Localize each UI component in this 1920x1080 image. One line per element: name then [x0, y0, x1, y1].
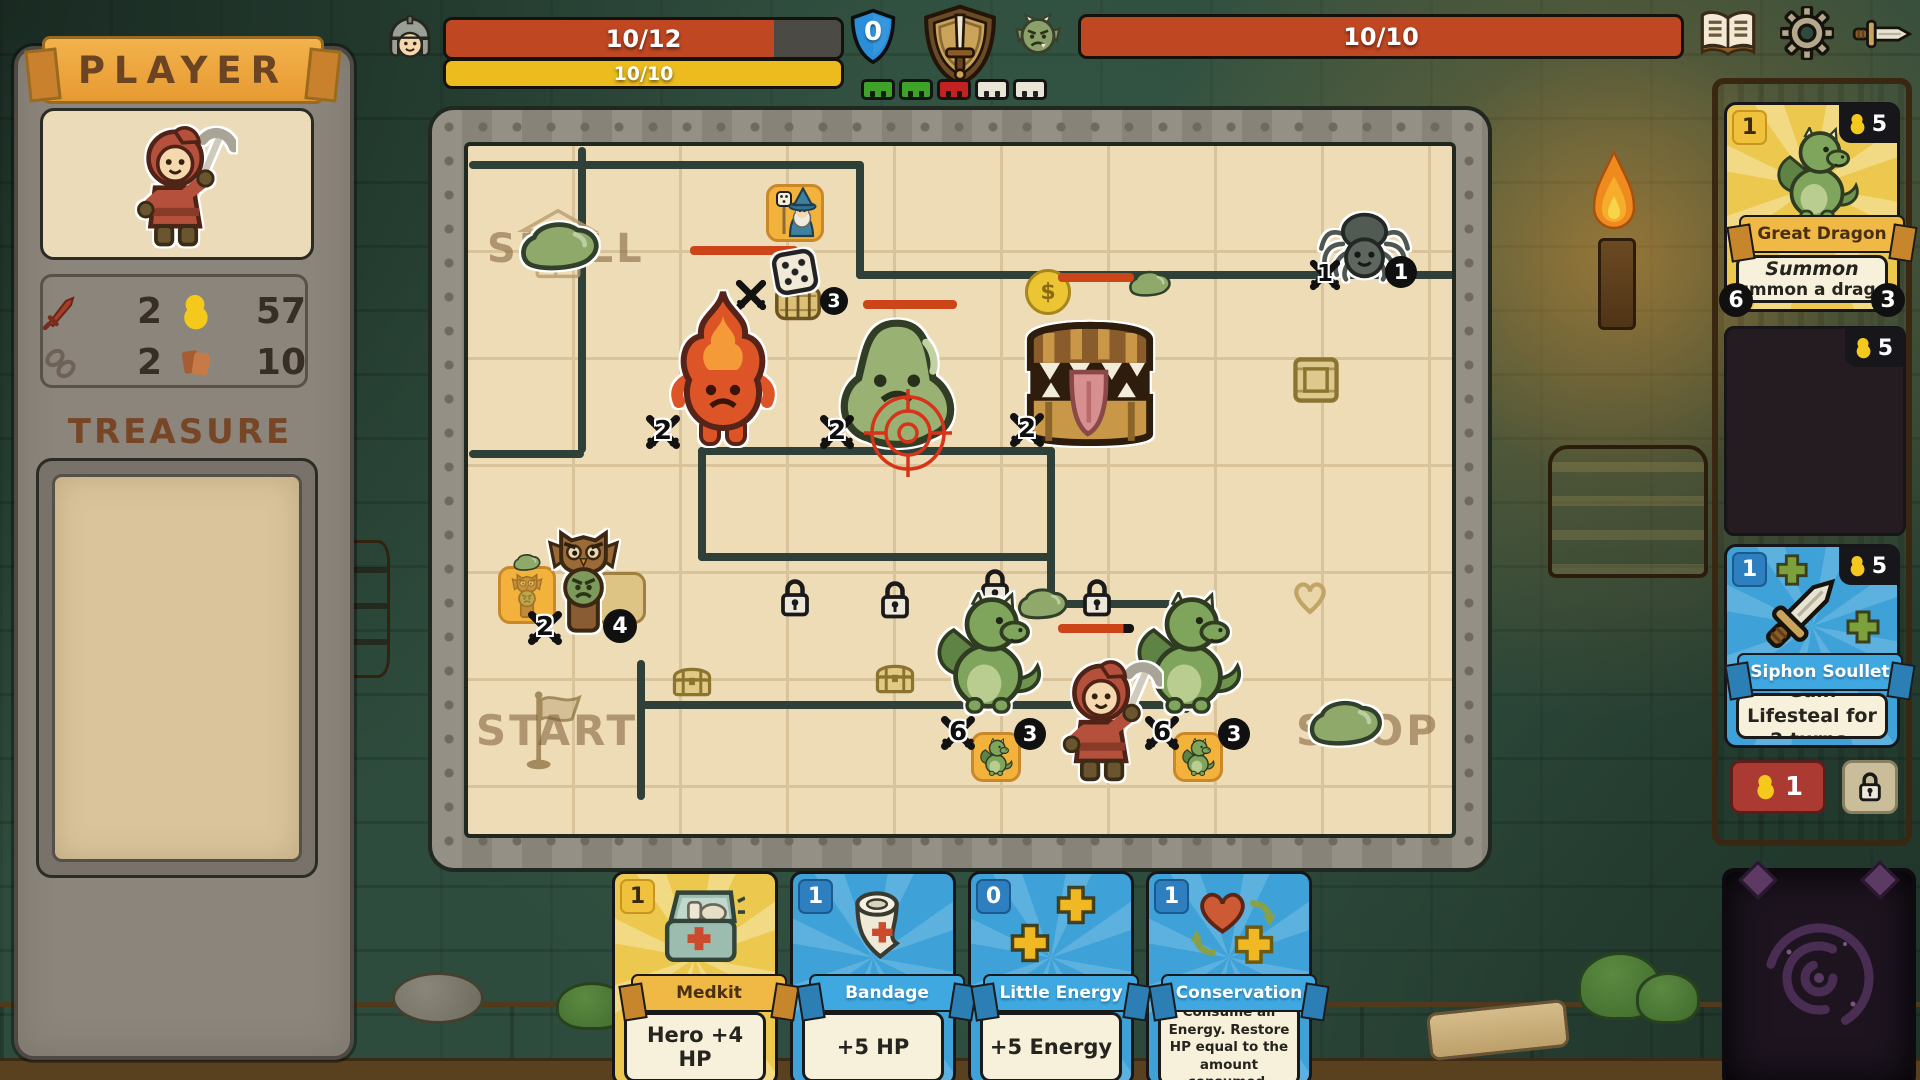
card-price-value: 5 — [1872, 554, 1887, 579]
reroll-button[interactable]: 1 — [1730, 760, 1826, 814]
card-name: Little Energy — [999, 983, 1122, 1003]
card-count-badge: 0 — [976, 879, 1011, 914]
card-price-value: 5 — [1878, 336, 1893, 361]
chest-tile-icon[interactable] — [872, 658, 918, 696]
dragon-left-attack-badge: 6 — [940, 715, 976, 751]
fire-attack-value: 2 — [654, 416, 672, 446]
player-portrait[interactable] — [40, 108, 314, 260]
shop-lock-button[interactable] — [1842, 760, 1898, 814]
torch-sconce — [1598, 238, 1636, 330]
enemy-hp-value: 10/10 — [1343, 23, 1419, 51]
player-hp-bar: 10/12 — [443, 17, 844, 60]
deck-portal[interactable] — [1722, 868, 1916, 1080]
mimic-attack-badge: 2 — [1009, 412, 1045, 448]
sword-icon — [1852, 18, 1914, 50]
gold-stat-value: 57 — [226, 291, 306, 332]
torch-flame-icon — [1592, 150, 1636, 242]
card-name-banner: Great Dragon — [1739, 215, 1905, 253]
wall — [469, 450, 584, 458]
attack-stat-value: 2 — [92, 291, 162, 332]
lock-icon — [1856, 770, 1884, 804]
card-text-box: Hero +4 HP — [624, 1012, 766, 1080]
shop-slime-blob-token[interactable] — [1306, 696, 1386, 748]
gold-coin-icon — [1847, 112, 1867, 136]
wall — [698, 553, 1055, 561]
player-banner: PLAYER — [42, 36, 324, 104]
slime-hp-bar — [863, 300, 957, 309]
background-treasure-chest — [1548, 445, 1708, 578]
spider-attack-badge: 1 — [1309, 259, 1341, 291]
slime-attack-badge: 2 — [819, 414, 855, 450]
baby-dragon-tile[interactable] — [1173, 732, 1223, 782]
card-name: Siphon Soullet — [1750, 662, 1889, 682]
card-text-box: Summon Summon a dragon — [1736, 255, 1888, 303]
turn-segment-green — [861, 79, 895, 100]
lock-tile-icon[interactable] — [877, 578, 913, 622]
player-helmet-icon — [384, 14, 436, 66]
card-name-banner: Bandage — [809, 974, 965, 1012]
crate-token[interactable] — [1292, 356, 1340, 404]
dragon-right-attack-value: 6 — [1153, 717, 1171, 747]
totem-attack-value: 2 — [536, 612, 554, 642]
cards-stat-icon — [178, 345, 214, 381]
wall — [469, 161, 863, 169]
treasure-title: TREASURE — [14, 412, 346, 452]
chain-stat-icon — [42, 345, 78, 381]
target-reticle-icon — [862, 387, 954, 479]
medkit-art-icon — [653, 884, 745, 972]
card-name-banner: Medkit — [631, 974, 787, 1012]
plus-art-icon — [1775, 553, 1809, 587]
totem-count-badge: 4 — [603, 609, 637, 643]
card-count-badge: 1 — [1732, 110, 1767, 145]
card-price-badge: 5 — [1845, 329, 1903, 367]
card-keyword: Summon — [1765, 258, 1858, 280]
spider-count-badge: 1 — [1385, 256, 1417, 288]
sprout-blob-icon — [512, 552, 542, 572]
combat-emblem-icon — [922, 4, 998, 88]
card-text-box: Gain Lifesteal for 2 turns. — [1736, 693, 1888, 739]
dragon-right-count-badge: 3 — [1218, 718, 1250, 750]
mimic-attack-value: 2 — [1018, 414, 1036, 444]
gold-coin-icon — [178, 293, 212, 331]
chest-tile-icon[interactable] — [669, 661, 715, 699]
card-count-badge: 1 — [798, 879, 833, 914]
slime-blob-token[interactable] — [517, 215, 603, 275]
card-name: Medkit — [676, 983, 742, 1003]
block-shield: 0 — [849, 8, 897, 66]
start-tile-label: START — [467, 706, 647, 755]
baby-dragon-icon — [977, 738, 1015, 776]
card-name-banner: Conservation — [1161, 974, 1317, 1012]
card-desc: +5 Energy — [990, 1035, 1112, 1059]
block-value: 0 — [849, 17, 897, 47]
mimic-hp-bar — [1058, 273, 1134, 282]
treasure-slot-inner — [52, 474, 302, 862]
card-count-badge: 1 — [620, 879, 655, 914]
fire-attack-badge: 2 — [645, 414, 681, 450]
dragon-left-token[interactable] — [927, 592, 1049, 714]
dragon-left-count-badge: 3 — [1014, 718, 1046, 750]
plus-art-icon — [1009, 922, 1051, 964]
lock-tile-icon[interactable] — [777, 576, 813, 620]
conservation-art-icon — [1187, 886, 1279, 970]
attack-stat-icon — [42, 294, 78, 330]
slime-attack-value: 2 — [828, 416, 846, 446]
player-energy-bar: 10/10 — [443, 58, 844, 89]
gold-coin-icon — [1847, 554, 1867, 578]
cards-stat-value: 10 — [226, 342, 306, 383]
card-name: Bandage — [845, 983, 929, 1003]
wall — [578, 147, 586, 453]
card-name: Great Dragon — [1757, 224, 1886, 244]
shop-card-great-dragon[interactable]: 1 5 Great Dragon Summon Summon a dragon … — [1724, 102, 1900, 312]
card-count-badge: 1 — [1154, 879, 1189, 914]
wizard-icon — [771, 187, 819, 239]
plant — [1636, 972, 1700, 1024]
card-uses-badge: 3 — [1871, 283, 1905, 317]
attack-mode-button[interactable] — [1852, 18, 1914, 50]
dragon-right-attack-badge: 6 — [1144, 715, 1180, 751]
chain-stat-value: 2 — [92, 342, 162, 383]
card-desc: Summon a dragon — [1736, 280, 1888, 300]
card-text-box: +5 Energy — [980, 1012, 1122, 1080]
lock-tile-icon[interactable] — [1079, 576, 1115, 620]
fire-elemental-token[interactable] — [663, 288, 783, 456]
baby-dragon-tile[interactable] — [971, 732, 1021, 782]
card-count-badge: 1 — [1732, 552, 1767, 587]
gold-coin-icon — [1853, 336, 1873, 360]
dragon-left-attack-value: 6 — [949, 717, 967, 747]
wizard-tile[interactable] — [766, 184, 824, 242]
treasure-slot[interactable] — [36, 458, 318, 878]
wall — [856, 161, 864, 279]
card-attack-badge: 6 — [1719, 283, 1753, 317]
turn-segments — [861, 79, 1047, 100]
spider-attack-value: 1 — [1317, 261, 1333, 287]
card-name-banner: Siphon Soullet — [1737, 653, 1903, 691]
gold-coin-icon — [1753, 773, 1777, 801]
card-desc: Hero +4 HP — [631, 1023, 759, 1071]
totem-attack-badge: 2 — [527, 610, 563, 646]
floor-edge — [0, 1058, 1920, 1080]
blob-hp-bar — [1058, 624, 1134, 633]
turn-segment-empty — [1013, 79, 1047, 100]
card-price-badge: 5 — [1839, 547, 1897, 585]
enemy-hp-bar: 10/10 — [1078, 14, 1684, 59]
reroll-cost-value: 1 — [1785, 772, 1803, 802]
card-text-box: Consume all Energy. Restore HP equal to … — [1158, 1004, 1300, 1080]
game-screen: 10/12 10/10 0 10/10 PLAYER 2 57 2 10 TRE… — [0, 0, 1920, 1080]
card-desc: +5 HP — [837, 1035, 910, 1059]
player-hp-value: 10/12 — [606, 25, 682, 53]
plus-art-icon — [1055, 884, 1097, 926]
card-desc: Gain Lifesteal for 2 turns. — [1743, 693, 1881, 739]
hand-card-medkit[interactable]: 1 Medkit Hero +4 HP — [612, 871, 778, 1080]
card-desc: Consume all Energy. Restore HP equal to … — [1165, 1004, 1293, 1080]
card-price-value: 5 — [1872, 112, 1887, 137]
wall — [698, 447, 706, 561]
portal-swirl-icon — [1749, 908, 1889, 1048]
hand-card-conservation[interactable]: 1 Conservation Consume all Energy. Resto… — [1146, 871, 1312, 1080]
card-price-badge: 5 — [1839, 105, 1897, 143]
settings-button[interactable] — [1780, 6, 1834, 60]
rock — [392, 972, 484, 1024]
barrel-count-badge: 3 — [820, 287, 848, 315]
hand-card-little-energy[interactable]: 0 Little Energy +5 Energy — [968, 871, 1134, 1080]
player-panel-title: PLAYER — [78, 49, 288, 92]
mimic-coin-symbol: $ — [1040, 280, 1055, 305]
turn-segment-empty — [975, 79, 1009, 100]
turn-segment-red — [937, 79, 971, 100]
turn-segment-green — [899, 79, 933, 100]
hand-card-bandage[interactable]: 1 Bandage +5 HP — [790, 871, 956, 1080]
enemy-goblin-icon — [1012, 12, 1064, 60]
card-text-box: +5 HP — [802, 1012, 944, 1080]
hero-knight-icon — [118, 118, 236, 250]
card-name: Conservation — [1176, 983, 1303, 1003]
bandage-art-icon — [841, 884, 913, 970]
shop-slot-empty[interactable]: 5 — [1724, 326, 1906, 536]
player-stats: 2 57 2 10 — [40, 274, 308, 388]
journal-button[interactable] — [1698, 8, 1758, 58]
player-energy-value: 10/10 — [614, 63, 674, 85]
book-icon — [1698, 8, 1758, 58]
card-name-banner: Little Energy — [983, 974, 1139, 1012]
baby-dragon-icon — [1179, 738, 1217, 776]
gear-icon — [1780, 6, 1834, 60]
heart-tile-icon[interactable] — [1289, 577, 1331, 617]
plus-art-icon — [1845, 609, 1881, 645]
shop-card-siphon-soullet[interactable]: 1 5 Siphon Soullet Gain Lifesteal for 2 … — [1724, 544, 1900, 748]
